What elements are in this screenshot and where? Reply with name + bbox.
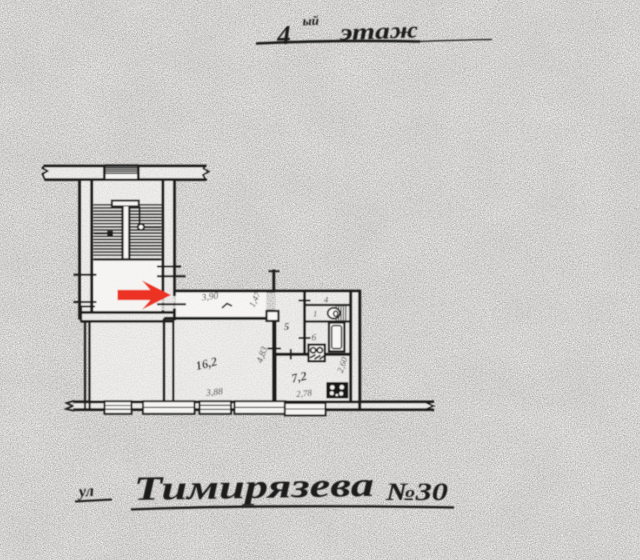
svg-text:5: 5 <box>284 322 289 333</box>
svg-text:ул: ул <box>76 483 94 501</box>
svg-text:4: 4 <box>276 20 292 50</box>
svg-text:2,78: 2,78 <box>296 388 313 399</box>
svg-text:6: 6 <box>312 334 317 344</box>
svg-text:1: 1 <box>313 309 317 319</box>
svg-text:№30: №30 <box>385 479 449 506</box>
svg-text:ый: ый <box>302 13 319 29</box>
svg-text:3,88: 3,88 <box>205 387 224 399</box>
svg-text:Тимирязева: Тимирязева <box>134 467 375 508</box>
